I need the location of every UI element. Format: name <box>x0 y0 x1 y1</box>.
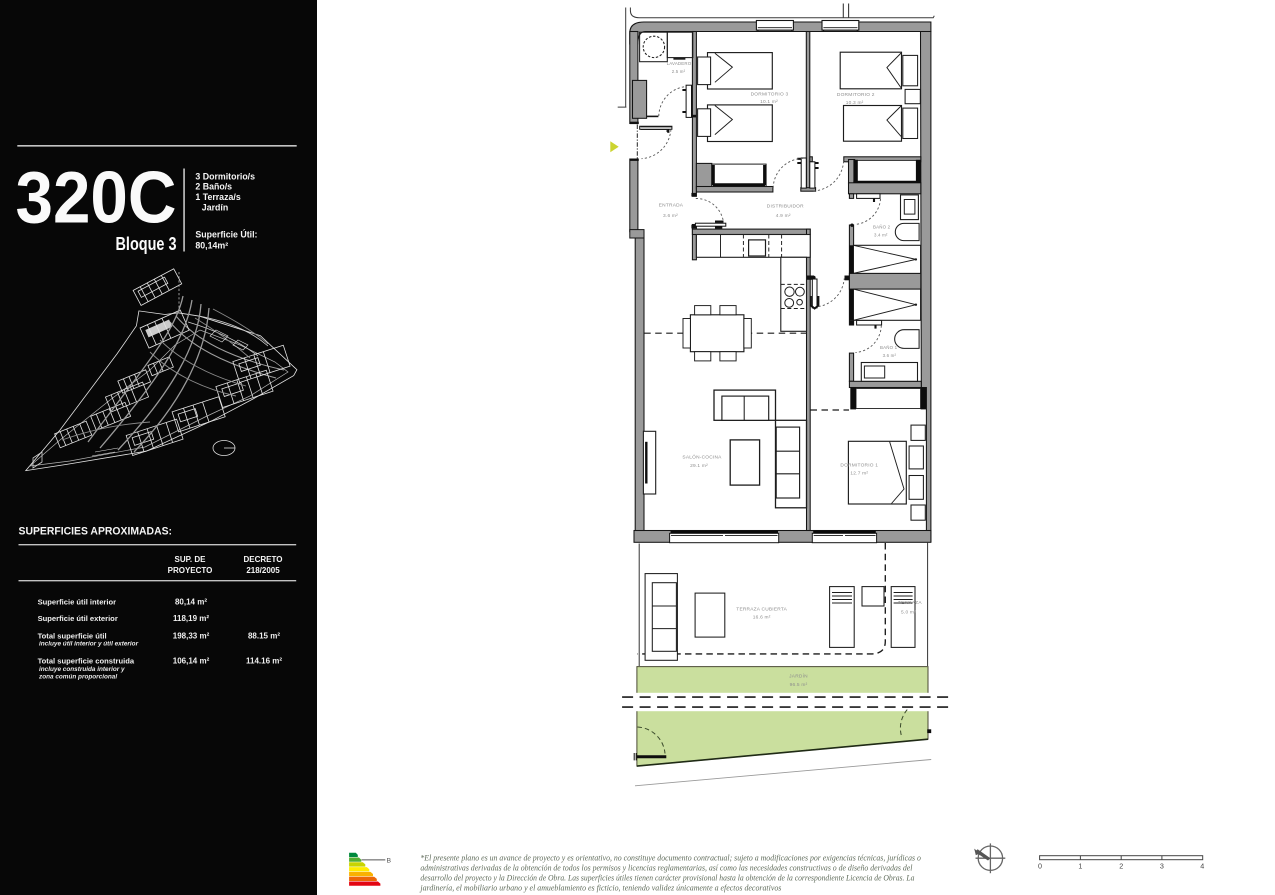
svg-text:1: 1 <box>1078 861 1082 870</box>
svg-text:16.6 m²: 16.6 m² <box>753 615 771 621</box>
svg-text:218/2005: 218/2005 <box>246 566 280 575</box>
svg-text:118,19 m²: 118,19 m² <box>173 614 209 623</box>
svg-text:Superficie Útil:: Superficie Útil: <box>195 229 257 240</box>
svg-text:SUPERFICIES APROXIMADAS:: SUPERFICIES APROXIMADAS: <box>19 526 173 538</box>
svg-text:zona común proporcional: zona común proporcional <box>38 674 117 681</box>
svg-text:2.5 m²: 2.5 m² <box>672 69 686 74</box>
svg-text:3.6 m²: 3.6 m² <box>883 353 897 358</box>
svg-text:desarrollo del proyecto y la D: desarrollo del proyecto y la Dirección d… <box>420 873 914 882</box>
svg-text:198,33 m²: 198,33 m² <box>173 632 210 641</box>
svg-text:114.16 m²: 114.16 m² <box>246 657 282 666</box>
svg-text:Superficie útil interior: Superficie útil interior <box>38 598 117 607</box>
svg-text:12.7 m²: 12.7 m² <box>850 471 868 477</box>
svg-text:DORMITORIO 3: DORMITORIO 3 <box>751 92 789 98</box>
svg-text:96.5 m²: 96.5 m² <box>790 682 808 688</box>
svg-text:TERRAZA: TERRAZA <box>898 600 923 606</box>
svg-text:3.4 m²: 3.4 m² <box>874 232 888 237</box>
svg-text:80,14 m²: 80,14 m² <box>175 598 207 607</box>
svg-text:JARDÍN: JARDÍN <box>789 673 808 680</box>
svg-text:DORMITORIO 1: DORMITORIO 1 <box>840 462 878 468</box>
svg-text:Total superficie útil: Total superficie útil <box>38 632 107 641</box>
svg-text:SALÓN-COCINA: SALÓN-COCINA <box>682 454 722 461</box>
svg-text:DECRETO: DECRETO <box>244 555 283 564</box>
svg-text:4: 4 <box>1200 861 1204 870</box>
svg-text:*El presente plano es un avanc: *El presente plano es un avance de proye… <box>420 853 921 862</box>
svg-text:DISTRIBUIDOR: DISTRIBUIDOR <box>767 204 804 210</box>
svg-text:4.9 m²: 4.9 m² <box>776 213 791 219</box>
svg-text:administrativas derivadas de l: administrativas derivadas de la obtenció… <box>420 863 913 872</box>
svg-text:incluye útil interior y útil e: incluye útil interior y útil exterior <box>39 641 139 648</box>
svg-text:ENTRADA: ENTRADA <box>659 202 684 208</box>
svg-text:10.1 m²: 10.1 m² <box>760 99 778 105</box>
svg-text:3.6 m²: 3.6 m² <box>663 213 678 219</box>
svg-text:incluye construida interior y: incluye construida interior y <box>39 666 125 673</box>
svg-text:PROYECTO: PROYECTO <box>168 566 213 575</box>
svg-text:0: 0 <box>1038 861 1042 870</box>
svg-text:BAÑO 2: BAÑO 2 <box>873 224 891 229</box>
svg-text:jardinería, el mobiliario urba: jardinería, el mobiliario urbano y el am… <box>419 883 781 892</box>
svg-text:5.0 m²: 5.0 m² <box>901 609 916 615</box>
svg-text:320C: 320C <box>16 158 177 239</box>
svg-text:B: B <box>387 858 392 865</box>
svg-text:SUP. DE: SUP. DE <box>175 555 207 564</box>
svg-text:2: 2 <box>1119 861 1123 870</box>
svg-text:80,14m²: 80,14m² <box>195 240 228 250</box>
svg-text:2 Baño/s: 2 Baño/s <box>195 182 232 192</box>
svg-text:10.3 m²: 10.3 m² <box>846 100 864 106</box>
svg-text:3 Dormitorio/s: 3 Dormitorio/s <box>195 171 255 181</box>
svg-text:Total superficie construida: Total superficie construida <box>38 657 135 666</box>
svg-text:88.15 m²: 88.15 m² <box>248 632 280 641</box>
svg-text:BAÑO 1: BAÑO 1 <box>880 345 898 350</box>
svg-text:Bloque 3: Bloque 3 <box>116 234 177 254</box>
svg-text:TERRAZA CUBIERTA: TERRAZA CUBIERTA <box>736 606 787 612</box>
svg-text:106,14 m²: 106,14 m² <box>173 657 210 666</box>
svg-text:DORMITORIO 2: DORMITORIO 2 <box>837 92 875 98</box>
svg-text:29.1 m²: 29.1 m² <box>690 463 708 469</box>
svg-text:Jardín: Jardín <box>202 203 228 213</box>
svg-text:3: 3 <box>1160 861 1164 870</box>
svg-text:LAVADERO: LAVADERO <box>667 61 692 66</box>
svg-text:Superficie útil exterior: Superficie útil exterior <box>38 614 118 623</box>
svg-text:1 Terraza/s: 1 Terraza/s <box>195 192 240 202</box>
